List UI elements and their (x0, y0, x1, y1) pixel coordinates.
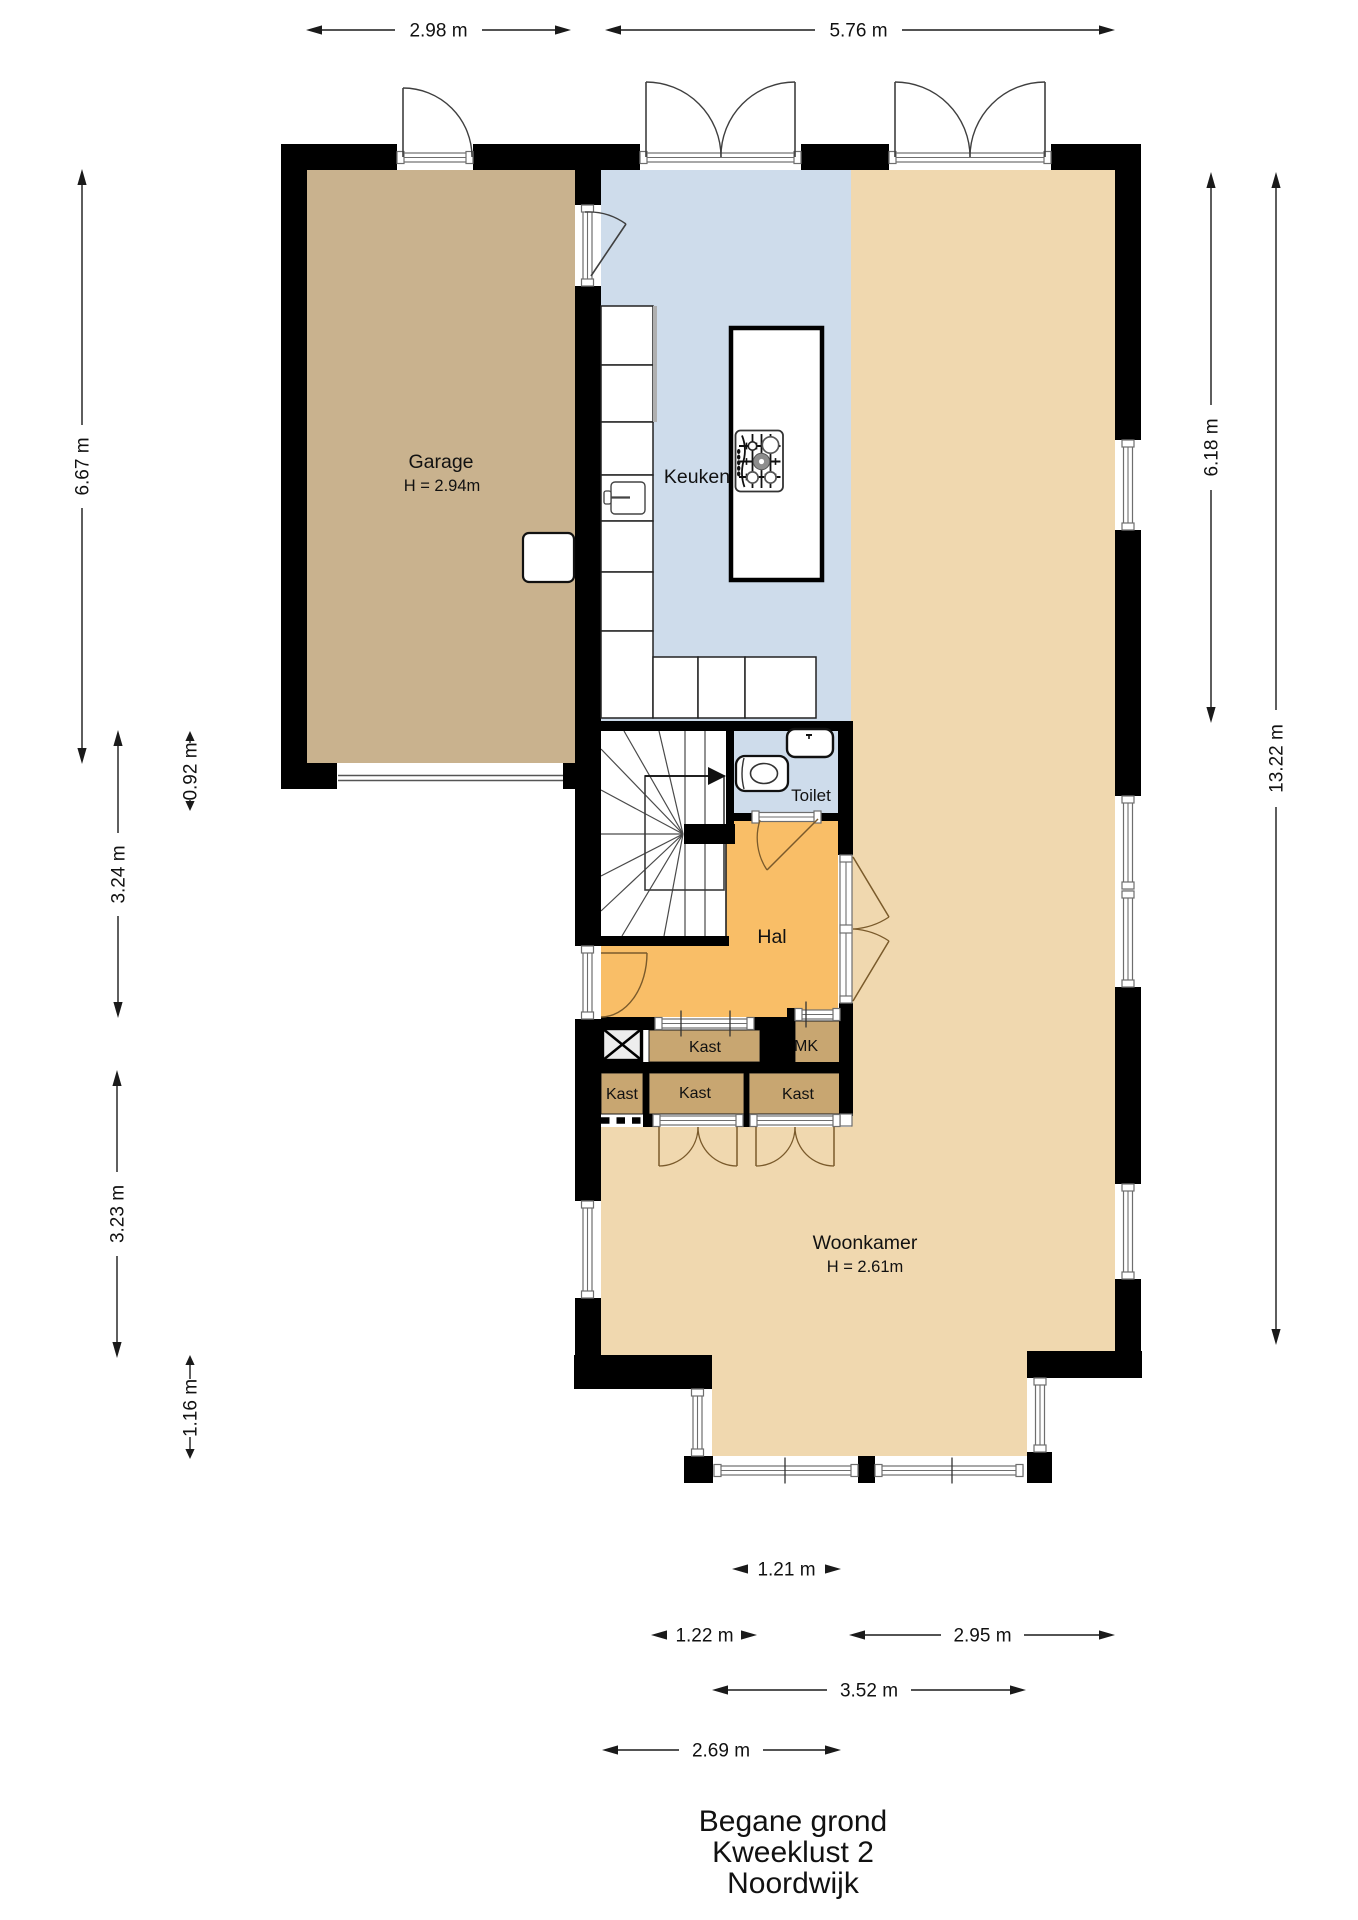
svg-text:1.16 m: 1.16 m (181, 1379, 202, 1437)
svg-text:Kast: Kast (679, 1085, 712, 1102)
svg-text:Begane grond: Begane grond (699, 1805, 888, 1838)
svg-text:Kast: Kast (606, 1086, 639, 1103)
svg-text:Noordwijk: Noordwijk (727, 1867, 860, 1900)
svg-text:H = 2.61m: H = 2.61m (827, 1258, 904, 1276)
svg-text:H = 2.94m: H = 2.94m (404, 477, 481, 495)
svg-text:2.69 m: 2.69 m (692, 1741, 750, 1762)
svg-text:Kweeklust 2: Kweeklust 2 (712, 1836, 874, 1869)
svg-text:Hal: Hal (757, 926, 786, 948)
svg-text:Woonkamer: Woonkamer (813, 1232, 918, 1254)
svg-text:1.21 m: 1.21 m (757, 1560, 815, 1581)
svg-text:2.95 m: 2.95 m (953, 1626, 1011, 1647)
svg-text:3.23 m: 3.23 m (108, 1185, 129, 1243)
svg-text:1.22 m: 1.22 m (675, 1626, 733, 1647)
svg-text:0.92 m: 0.92 m (181, 742, 202, 800)
svg-text:Garage: Garage (408, 451, 473, 473)
svg-text:MK: MK (794, 1038, 818, 1055)
svg-text:6.67 m: 6.67 m (73, 437, 94, 495)
svg-text:13.22 m: 13.22 m (1267, 724, 1288, 793)
svg-text:Kast: Kast (782, 1086, 815, 1103)
svg-text:3.24 m: 3.24 m (109, 845, 130, 903)
svg-text:Toilet: Toilet (791, 786, 831, 805)
svg-text:5.76 m: 5.76 m (829, 21, 887, 42)
svg-text:Kast: Kast (689, 1039, 722, 1056)
svg-text:2.98 m: 2.98 m (409, 21, 467, 42)
svg-text:3.52 m: 3.52 m (840, 1681, 898, 1702)
svg-text:Keuken: Keuken (664, 466, 730, 488)
svg-text:6.18 m: 6.18 m (1202, 418, 1223, 476)
